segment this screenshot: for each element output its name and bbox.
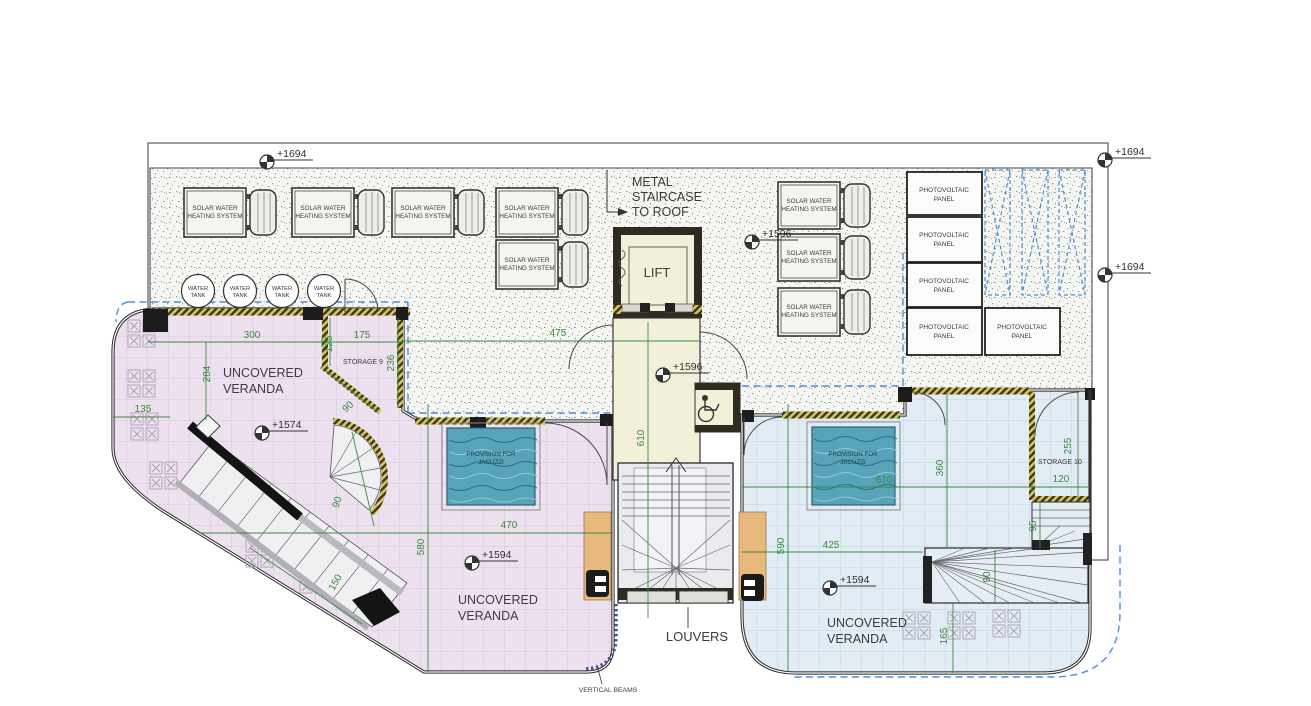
svg-text:284: 284 <box>202 365 213 382</box>
svg-text:WATER: WATER <box>230 286 250 292</box>
uncovered-veranda-left-lower: UNCOVERED <box>458 593 538 607</box>
svg-text:425: 425 <box>823 540 840 551</box>
svg-text:580: 580 <box>416 538 427 555</box>
svg-text:STAIRCASE: STAIRCASE <box>632 190 702 204</box>
louver-grille <box>679 591 728 603</box>
svg-text:SOLAR WATER: SOLAR WATER <box>300 205 346 212</box>
svg-text:TANK: TANK <box>232 293 247 299</box>
svg-text:PHOTOVOLTAIC: PHOTOVOLTAIC <box>919 324 969 331</box>
storage10-label: STORAGE 10 <box>1038 459 1082 466</box>
svg-text:PANEL: PANEL <box>934 287 955 294</box>
svg-text:SOLAR WATER: SOLAR WATER <box>504 257 550 264</box>
core-staircase <box>618 458 733 603</box>
svg-text:360: 360 <box>935 459 946 476</box>
svg-text:SOLAR WATER: SOLAR WATER <box>192 205 238 212</box>
svg-text:590: 590 <box>776 537 787 554</box>
louvers-label: LOUVERS <box>666 629 728 644</box>
svg-text:SOLAR WATER: SOLAR WATER <box>504 205 550 212</box>
svg-text:135: 135 <box>135 404 152 415</box>
svg-text:TANK: TANK <box>316 293 331 299</box>
svg-text:+1594: +1594 <box>482 549 512 561</box>
svg-text:VERANDA: VERANDA <box>223 382 284 396</box>
svg-text:PHOTOVOLTAIC: PHOTOVOLTAIC <box>919 187 969 194</box>
svg-text:TO ROOF: TO ROOF <box>632 205 689 219</box>
svg-text:PANEL: PANEL <box>934 241 955 248</box>
svg-text:300: 300 <box>244 330 261 341</box>
svg-text:PHOTOVOLTAIC: PHOTOVOLTAIC <box>919 232 969 239</box>
louver-grille <box>627 591 676 603</box>
svg-text:175: 175 <box>354 330 371 341</box>
svg-text:236: 236 <box>386 354 397 371</box>
svg-text:JACUZZI: JACUZZI <box>478 459 504 466</box>
svg-text:+1694: +1694 <box>1115 261 1145 273</box>
svg-text:95: 95 <box>1028 520 1039 532</box>
svg-text:SOLAR WATER: SOLAR WATER <box>786 250 832 257</box>
svg-text:HEATING SYSTEM: HEATING SYSTEM <box>395 213 450 220</box>
svg-text:255: 255 <box>1063 437 1074 454</box>
svg-text:SOLAR WATER: SOLAR WATER <box>400 205 446 212</box>
jacuzzi-left <box>442 423 540 510</box>
svg-text:+1694: +1694 <box>1115 146 1145 158</box>
vertical-beams-label: VERTICAL BEAMS <box>579 687 638 694</box>
lift-label: LIFT <box>644 265 671 280</box>
svg-text:SOLAR WATER: SOLAR WATER <box>786 304 832 311</box>
jacuzzi-left-label: PROVISION FOR <box>466 451 516 458</box>
storage9-label: STORAGE 9 <box>343 359 383 366</box>
svg-text:HEATING SYSTEM: HEATING SYSTEM <box>295 213 350 220</box>
svg-text:165: 165 <box>939 627 950 644</box>
uncovered-veranda-right: UNCOVERED <box>827 616 907 630</box>
svg-text:WATER: WATER <box>188 286 208 292</box>
svg-text:470: 470 <box>501 520 518 531</box>
svg-text:HEATING SYSTEM: HEATING SYSTEM <box>781 258 836 265</box>
floor-plan-canvas: SOLAR WATERHEATING SYSTEM SOLAR WATERHEA… <box>0 0 1311 706</box>
svg-text:90: 90 <box>982 571 993 583</box>
svg-text:TANK: TANK <box>190 293 205 299</box>
svg-text:JACUZZI: JACUZZI <box>840 459 866 466</box>
svg-text:PHOTOVOLTAIC: PHOTOVOLTAIC <box>997 324 1047 331</box>
jacuzzi-right <box>807 422 900 510</box>
svg-text:125: 125 <box>324 335 335 352</box>
svg-text:VERANDA: VERANDA <box>827 632 888 646</box>
svg-text:WATER: WATER <box>272 286 292 292</box>
svg-text:HEATING SYSTEM: HEATING SYSTEM <box>499 265 554 272</box>
metal-staircase-label: METAL <box>632 175 673 189</box>
svg-text:+1694: +1694 <box>277 148 307 160</box>
svg-text:PANEL: PANEL <box>934 333 955 340</box>
svg-text:475: 475 <box>550 328 567 339</box>
svg-text:HEATING SYSTEM: HEATING SYSTEM <box>499 213 554 220</box>
svg-text:+1594: +1594 <box>840 574 870 586</box>
uncovered-veranda-left-upper: UNCOVERED <box>223 366 303 380</box>
svg-text:PANEL: PANEL <box>1012 333 1033 340</box>
svg-text:HEATING SYSTEM: HEATING SYSTEM <box>187 213 242 220</box>
svg-text:HEATING SYSTEM: HEATING SYSTEM <box>781 312 836 319</box>
svg-text:+1596: +1596 <box>762 228 792 240</box>
svg-text:+1574: +1574 <box>272 419 302 431</box>
svg-text:TANK: TANK <box>274 293 289 299</box>
jacuzzi-right-label: PROVISION FOR <box>828 451 878 458</box>
svg-text:120: 120 <box>1053 474 1070 485</box>
svg-text:670: 670 <box>876 475 893 486</box>
svg-text:SOLAR WATER: SOLAR WATER <box>786 198 832 205</box>
svg-text:+1596: +1596 <box>673 361 703 373</box>
svg-text:PHOTOVOLTAIC: PHOTOVOLTAIC <box>919 278 969 285</box>
svg-text:PANEL: PANEL <box>934 196 955 203</box>
svg-text:WATER: WATER <box>314 286 334 292</box>
svg-text:610: 610 <box>636 429 647 446</box>
roof-plan-drawing: SOLAR WATERHEATING SYSTEM SOLAR WATERHEA… <box>0 0 1311 706</box>
svg-text:HEATING SYSTEM: HEATING SYSTEM <box>781 206 836 213</box>
svg-text:VERANDA: VERANDA <box>458 609 519 623</box>
